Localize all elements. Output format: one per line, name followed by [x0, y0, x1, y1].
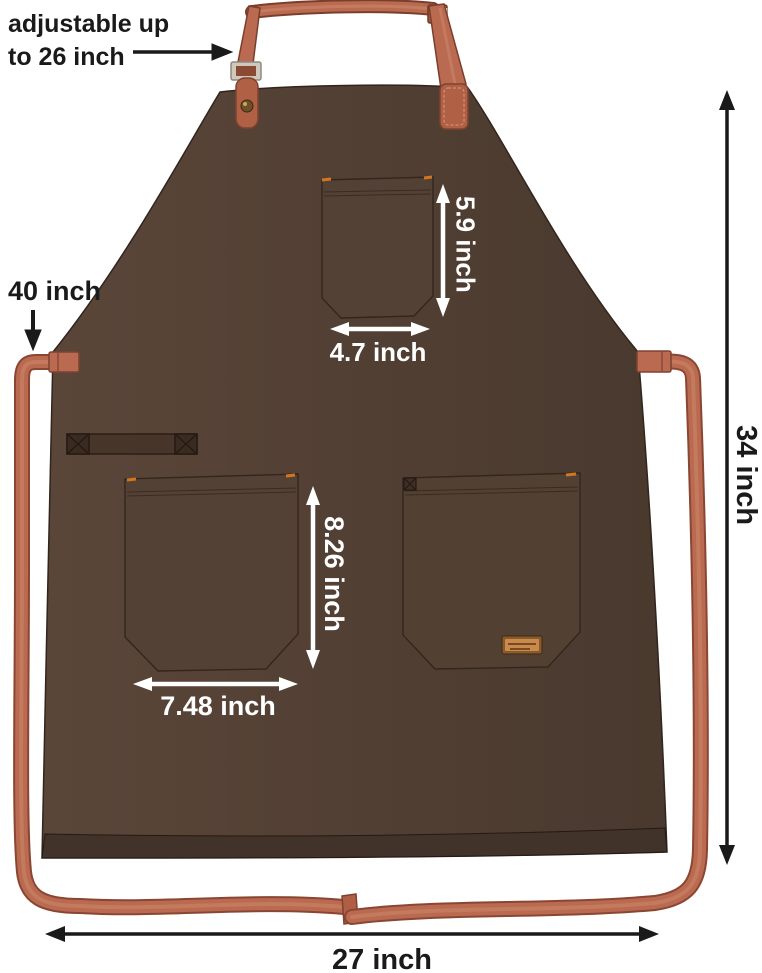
apron-width-label: 27 inch [312, 943, 452, 973]
front-pocket-height-label: 8.26 inch [317, 513, 349, 635]
neck-strap-left-tab [236, 78, 258, 128]
neck-adjust-label: adjustable up to 26 inch [8, 8, 208, 74]
apron-height-label: 34 inch [729, 417, 762, 533]
pocket-bartack [566, 474, 576, 475]
brand-label [502, 636, 542, 654]
waist-tie-length-label: 40 inch [8, 276, 101, 308]
front-right-pocket [403, 473, 580, 669]
neck-strap-left [238, 6, 260, 64]
chest-pocket-width-label: 4.7 inch [328, 337, 428, 368]
pocket-bartack [286, 475, 295, 476]
apron-illustration [0, 0, 762, 973]
pocket-stitch-box [404, 478, 416, 490]
pocket-bartack [424, 177, 432, 178]
waist-tab-right [637, 351, 671, 372]
chest-pocket [322, 177, 433, 318]
waist-tie-arrow [25, 310, 41, 350]
towel-loop [67, 434, 197, 454]
chest-pocket-height-label: 5.9 inch [450, 194, 481, 294]
apron-width-arrow [45, 926, 659, 942]
neck-strap-right-tab [440, 84, 468, 129]
pocket-bartack [322, 179, 331, 180]
towel-loop-stitch-right [175, 434, 197, 454]
pocket-bartack [127, 479, 136, 480]
front-left-pocket [125, 474, 298, 671]
waist-tab-left [49, 352, 79, 372]
front-pocket-width-label: 7.48 inch [157, 691, 279, 723]
apron-dimension-diagram: adjustable up to 26 inch 40 inch 5.9 inc… [0, 0, 762, 973]
towel-loop-stitch-left [67, 434, 89, 454]
rivet [241, 100, 253, 112]
